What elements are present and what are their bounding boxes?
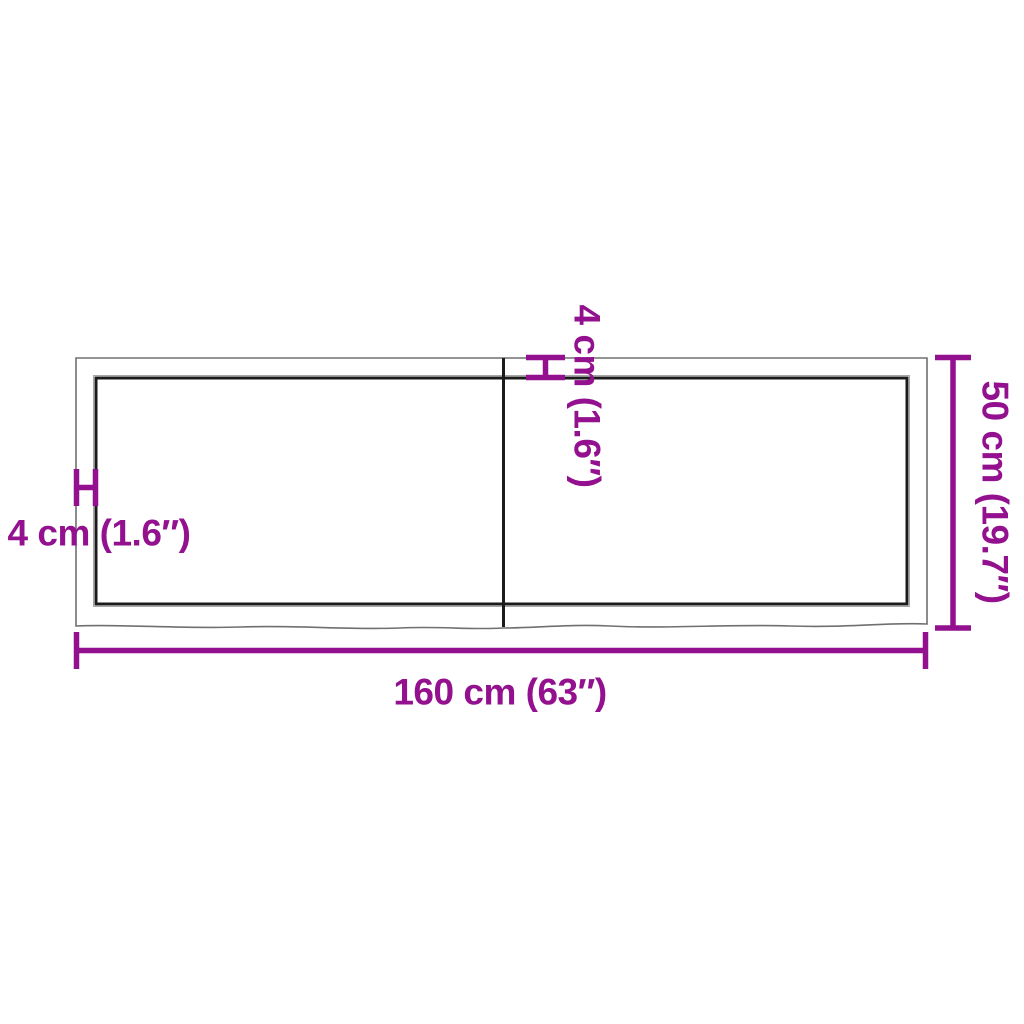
thickness-top-label: 4 cm (1.6″) bbox=[569, 305, 606, 488]
depth-dimension-label: 50 cm (19.7″) bbox=[977, 380, 1014, 603]
width-dimension-line bbox=[76, 632, 926, 669]
inner-edge-highlight bbox=[94, 376, 910, 607]
width-dimension-label: 160 cm (63″) bbox=[393, 674, 606, 711]
tabletop-outer-outline bbox=[76, 358, 927, 629]
dimension-diagram: 160 cm (63″) 50 cm (19.7″) 4 cm (1.6″) 4… bbox=[0, 0, 1024, 1024]
thickness-left-label: 4 cm (1.6″) bbox=[8, 515, 191, 552]
thickness-bracket-top bbox=[526, 355, 565, 380]
tabletop-inner-outline bbox=[96, 378, 907, 604]
depth-dimension-line bbox=[935, 357, 971, 629]
thickness-bracket-left bbox=[74, 469, 98, 506]
